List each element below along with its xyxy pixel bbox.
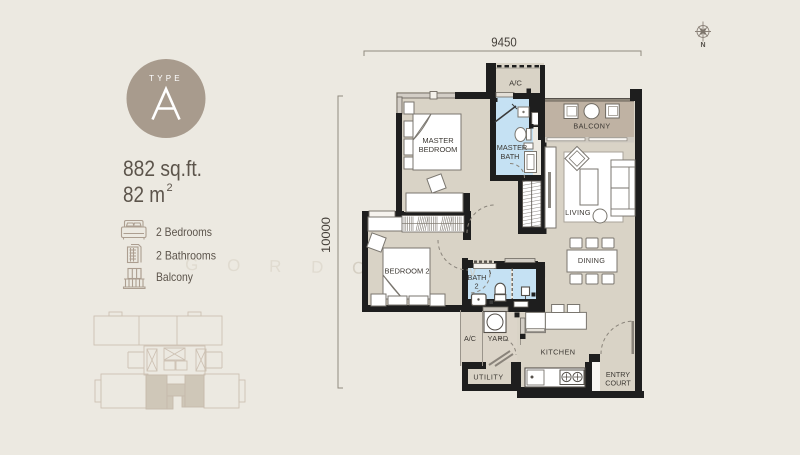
svg-text:KITCHEN: KITCHEN: [541, 348, 576, 357]
svg-text:N: N: [700, 42, 705, 49]
svg-text:D: D: [311, 258, 324, 277]
svg-text:10000: 10000: [319, 217, 333, 253]
svg-text:A/C: A/C: [509, 79, 522, 88]
svg-text:2: 2: [474, 282, 478, 291]
svg-text:82 m: 82 m: [123, 182, 165, 207]
svg-text:BEDROOM: BEDROOM: [419, 145, 458, 154]
svg-text:A/C: A/C: [464, 334, 476, 343]
svg-text:2 Bathrooms: 2 Bathrooms: [156, 249, 216, 263]
svg-text:DINING: DINING: [578, 256, 605, 265]
svg-text:BATH: BATH: [501, 152, 520, 161]
svg-text:9450: 9450: [491, 36, 517, 50]
svg-text:BEDROOM 2: BEDROOM 2: [384, 267, 429, 276]
svg-text:MASTER: MASTER: [497, 143, 527, 152]
svg-text:Balcony: Balcony: [156, 270, 193, 284]
svg-text:R: R: [269, 257, 282, 276]
svg-text:TYPE: TYPE: [149, 74, 183, 83]
svg-text:YARD: YARD: [488, 334, 509, 343]
svg-text:882 sq.ft.: 882 sq.ft.: [123, 156, 202, 181]
svg-text:COURT: COURT: [605, 379, 631, 388]
svg-text:BALCONY: BALCONY: [573, 122, 610, 131]
svg-text:LIVING: LIVING: [565, 208, 591, 217]
svg-text:MASTER: MASTER: [422, 136, 454, 145]
svg-text:2 Bedrooms: 2 Bedrooms: [156, 225, 212, 239]
svg-text:UTILITY: UTILITY: [473, 373, 503, 382]
svg-text:2: 2: [167, 182, 173, 194]
svg-text:O: O: [227, 256, 241, 275]
